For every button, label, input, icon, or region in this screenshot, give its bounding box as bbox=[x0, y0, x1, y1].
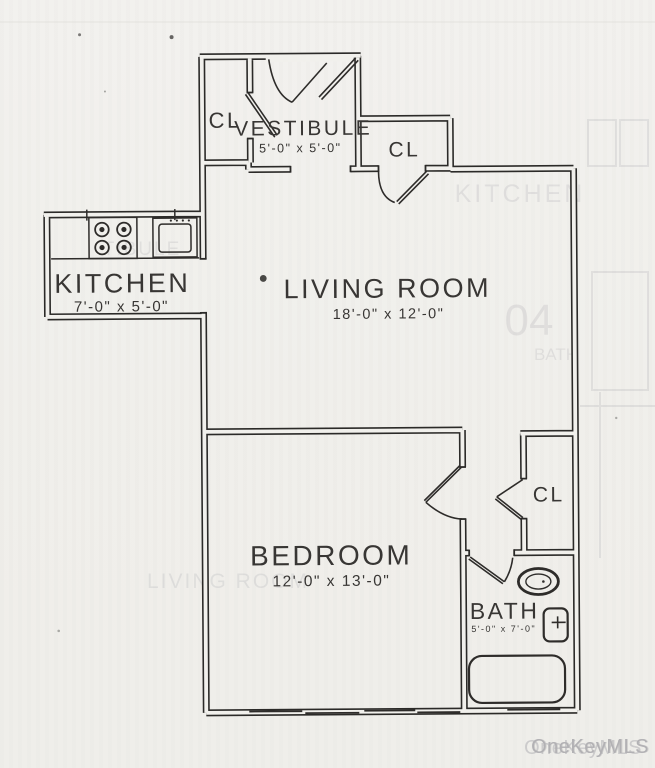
bedroom-dims: 12'-0" x 13'-0" bbox=[272, 573, 390, 591]
toilet bbox=[518, 568, 558, 594]
entry-doorway-opening bbox=[266, 57, 354, 62]
vestibule-closet-label: CL bbox=[209, 108, 242, 133]
kitchen-dims: 7'-0" x 5'-0" bbox=[74, 298, 169, 316]
living-room-label: LIVING ROOM bbox=[283, 273, 491, 304]
bath-sink bbox=[544, 608, 568, 641]
ghost-kitchen-label: KITCHEN bbox=[455, 180, 586, 208]
vestibule-dims: 5'-0" x 5'-0" bbox=[259, 141, 342, 156]
hall-closet-door bbox=[495, 480, 523, 520]
entry-door bbox=[269, 58, 359, 103]
floor-plan-drawing: KITCHEN 04 BATH LIVING ROOM TIBULE bbox=[0, 0, 655, 768]
entry-closet-door bbox=[379, 171, 429, 204]
toilet-bowl bbox=[526, 574, 551, 589]
bedroom-label: BEDROOM bbox=[250, 539, 412, 571]
watermark: OneKeyMLS bbox=[531, 736, 649, 759]
hall-closet-label: CL bbox=[533, 483, 565, 506]
bathtub bbox=[469, 655, 565, 703]
bath-label: BATH bbox=[470, 598, 540, 624]
faucet-dots bbox=[170, 219, 190, 221]
vestibule-label: VESTIBULE bbox=[234, 117, 372, 141]
bath-dims: 5'-0" x 7'-0" bbox=[471, 624, 536, 634]
living-room-dims: 18'-0" x 12'-0" bbox=[333, 306, 445, 323]
ghost-shapes bbox=[580, 120, 655, 558]
entry-closet-label: CL bbox=[388, 138, 420, 161]
bath-door bbox=[469, 557, 513, 584]
bath-sink-faucet bbox=[552, 616, 566, 628]
bath-fixtures bbox=[468, 568, 568, 703]
bedroom-door bbox=[424, 465, 462, 519]
ghost-unit-number: 04 bbox=[505, 296, 554, 345]
floor-plan-page: KITCHEN 04 BATH LIVING ROOM TIBULE bbox=[0, 0, 655, 768]
kitchen-label: KITCHEN bbox=[54, 268, 190, 299]
